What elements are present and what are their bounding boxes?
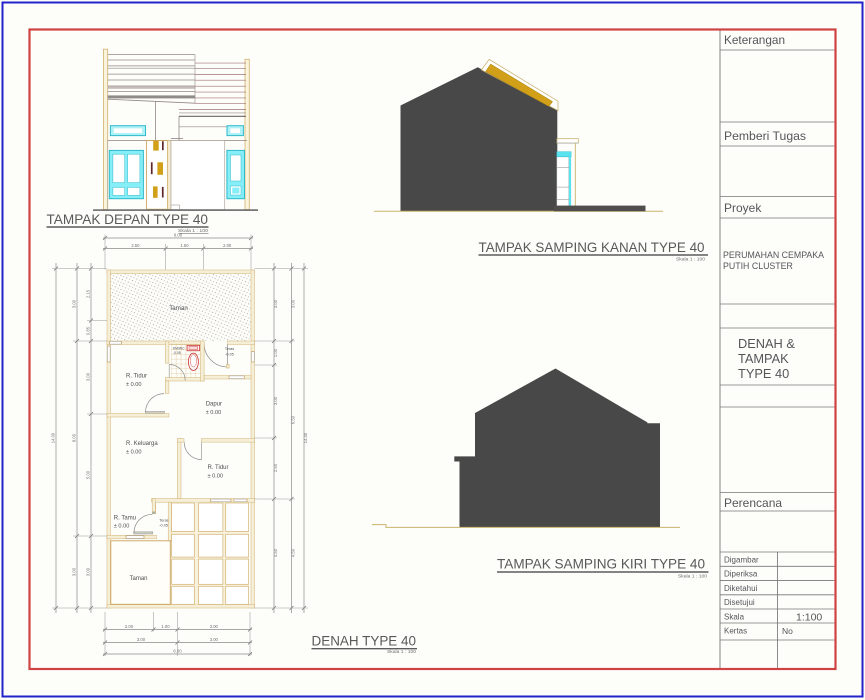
- svg-text:± 0.00: ± 0.00: [126, 382, 142, 388]
- svg-text:± 0.00: ± 0.00: [126, 450, 142, 456]
- svg-text:2.00: 2.00: [125, 624, 134, 629]
- svg-text:3.00: 3.00: [273, 396, 278, 405]
- svg-text:6.00: 6.00: [173, 649, 182, 654]
- svg-text:PERUMAHAN CEMPAKA: PERUMAHAN CEMPAKA: [723, 250, 824, 260]
- svg-text:1.50: 1.50: [180, 243, 189, 248]
- svg-text:± 0.00: ± 0.00: [114, 523, 130, 529]
- svg-text:1.00: 1.00: [273, 348, 278, 357]
- svg-text:DENAH TYPE 40: DENAH TYPE 40: [312, 633, 417, 649]
- svg-text:6.50: 6.50: [291, 415, 296, 424]
- svg-text:1:100: 1:100: [796, 612, 822, 624]
- svg-text:6.00: 6.00: [174, 232, 183, 237]
- svg-text:Kertas: Kertas: [724, 627, 747, 636]
- svg-text:Pemberi Tugas: Pemberi Tugas: [724, 129, 806, 143]
- svg-text:TAMPAK: TAMPAK: [738, 351, 789, 366]
- svg-text:Taman: Taman: [129, 576, 147, 582]
- svg-text:Digambar: Digambar: [724, 556, 759, 565]
- svg-text:0.85: 0.85: [86, 326, 91, 335]
- svg-text:R. Keluarga: R. Keluarga: [126, 441, 158, 447]
- svg-text:-0.05: -0.05: [173, 351, 181, 355]
- svg-text:14.00: 14.00: [51, 432, 56, 443]
- svg-text:± 0.00: ± 0.00: [208, 473, 224, 479]
- svg-text:Taman: Taman: [169, 305, 188, 312]
- svg-text:3.00: 3.00: [72, 567, 77, 576]
- svg-text:8.00: 8.00: [72, 433, 77, 442]
- svg-text:Proyek: Proyek: [724, 201, 762, 215]
- svg-text:DENAH &: DENAH &: [738, 336, 795, 351]
- svg-text:Skala 1 : 100: Skala 1 : 100: [178, 228, 208, 233]
- svg-text:4.50: 4.50: [291, 548, 296, 557]
- svg-text:-0.05: -0.05: [225, 352, 234, 356]
- svg-text:2.50: 2.50: [273, 463, 278, 472]
- svg-text:Perencana: Perencana: [724, 496, 782, 510]
- svg-text:1.00: 1.00: [161, 624, 170, 629]
- svg-text:3.00: 3.00: [137, 637, 146, 642]
- svg-text:TAMPAK SAMPING KIRI TYPE 40: TAMPAK SAMPING KIRI TYPE 40: [497, 556, 705, 572]
- svg-text:R. Tamu: R. Tamu: [114, 515, 136, 521]
- svg-text:Skala 1 : 100: Skala 1 : 100: [678, 574, 707, 579]
- svg-text:3.00: 3.00: [273, 299, 278, 308]
- svg-text:Teras: Teras: [225, 347, 234, 351]
- svg-text:Diperiksa: Diperiksa: [724, 570, 758, 579]
- svg-text:R. Tidur: R. Tidur: [208, 465, 229, 471]
- svg-text:Dapur: Dapur: [206, 401, 222, 407]
- svg-text:KM/WC: KM/WC: [173, 346, 185, 350]
- svg-text:3.00: 3.00: [210, 637, 219, 642]
- svg-text:Skala 1 : 100: Skala 1 : 100: [387, 649, 416, 654]
- svg-text:Teras: Teras: [159, 519, 168, 523]
- svg-text:2.00: 2.00: [223, 243, 232, 248]
- svg-text:5.00: 5.00: [86, 470, 91, 479]
- svg-text:2.15: 2.15: [86, 289, 91, 298]
- svg-text:3.00: 3.00: [86, 372, 91, 381]
- svg-text:± 0.00: ± 0.00: [206, 410, 222, 416]
- svg-text:2.50: 2.50: [131, 243, 140, 248]
- svg-text:TYPE 40: TYPE 40: [738, 366, 789, 381]
- svg-text:No: No: [782, 626, 793, 636]
- svg-text:3.00: 3.00: [86, 567, 91, 576]
- svg-text:Keterangan: Keterangan: [724, 33, 785, 47]
- svg-text:3.00: 3.00: [291, 299, 296, 308]
- svg-text:Disetujui: Disetujui: [724, 598, 755, 607]
- svg-text:3.00: 3.00: [210, 624, 219, 629]
- svg-text:-0.05: -0.05: [159, 524, 168, 528]
- svg-text:Diketahui: Diketahui: [724, 584, 758, 593]
- svg-text:3.00: 3.00: [72, 299, 77, 308]
- svg-text:PUTIH CLUSTER: PUTIH CLUSTER: [723, 261, 793, 271]
- svg-text:TAMPAK SAMPING KANAN TYPE 40: TAMPAK SAMPING KANAN TYPE 40: [479, 239, 705, 255]
- svg-text:R. Tidur: R. Tidur: [126, 374, 147, 380]
- svg-text:TAMPAK DEPAN TYPE 40: TAMPAK DEPAN TYPE 40: [47, 211, 209, 227]
- svg-text:4.50: 4.50: [273, 548, 278, 557]
- svg-text:Skala 1 : 100: Skala 1 : 100: [676, 257, 705, 262]
- svg-text:Skala: Skala: [724, 612, 745, 621]
- svg-text:14.00: 14.00: [303, 432, 308, 443]
